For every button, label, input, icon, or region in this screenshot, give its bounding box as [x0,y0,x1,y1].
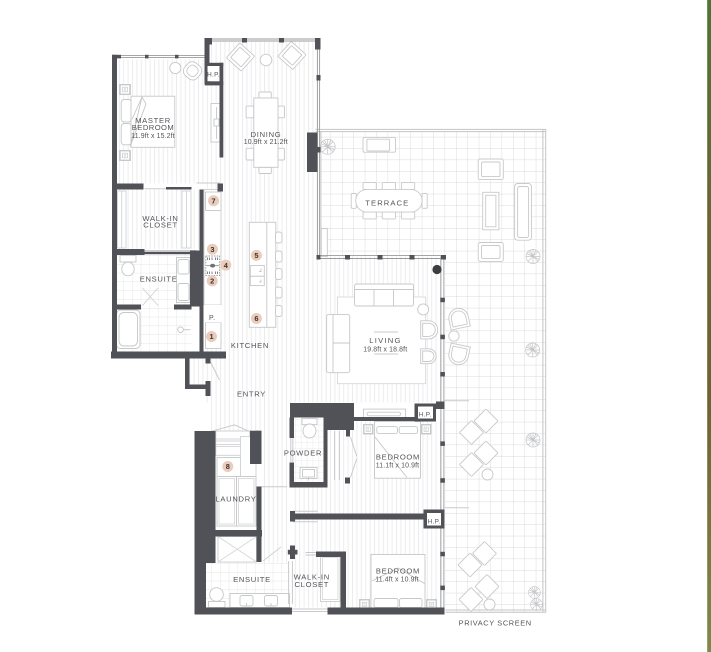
svg-text:11.9ft x 15.2ft: 11.9ft x 15.2ft [131,133,175,140]
svg-text:6: 6 [254,314,258,323]
svg-text:2: 2 [210,277,214,286]
svg-text:19.8ft x 18.8ft: 19.8ft x 18.8ft [363,346,407,353]
svg-text:H.P.: H.P. [428,519,441,526]
svg-text:ENTRY: ENTRY [237,389,266,398]
svg-text:DINING: DINING [251,130,282,139]
svg-text:10.9ft x 21.2ft: 10.9ft x 21.2ft [244,139,288,146]
svg-text:H.P.: H.P. [419,412,432,419]
svg-text:BEDROOM: BEDROOM [376,566,420,575]
svg-text:ENSUITE: ENSUITE [140,274,178,283]
svg-text:LAUNDRY: LAUNDRY [215,495,256,504]
svg-text:BEDROOM: BEDROOM [376,453,420,462]
svg-text:ENSUITE: ENSUITE [233,575,271,584]
svg-text:PRIVACY SCREEN: PRIVACY SCREEN [459,619,532,628]
svg-text:LIVING: LIVING [369,336,401,345]
svg-text:7: 7 [212,196,216,205]
svg-text:8: 8 [226,462,230,471]
svg-text:11.4ft x 10.9ft: 11.4ft x 10.9ft [375,577,419,584]
svg-text:H.P.: H.P. [207,71,220,78]
svg-text:TERRACE: TERRACE [365,199,409,208]
svg-text:CLOSET: CLOSET [143,221,178,230]
svg-text:POWDER: POWDER [284,449,322,458]
svg-text:5: 5 [254,251,258,260]
svg-text:KITCHEN: KITCHEN [231,341,269,350]
svg-text:P.: P. [209,315,215,322]
svg-text:CLOSET: CLOSET [295,580,330,589]
svg-text:11.1ft x 10.9ft: 11.1ft x 10.9ft [376,463,420,470]
svg-text:3: 3 [210,245,214,254]
svg-text:BEDROOM: BEDROOM [132,123,174,132]
svg-text:1: 1 [209,332,213,341]
